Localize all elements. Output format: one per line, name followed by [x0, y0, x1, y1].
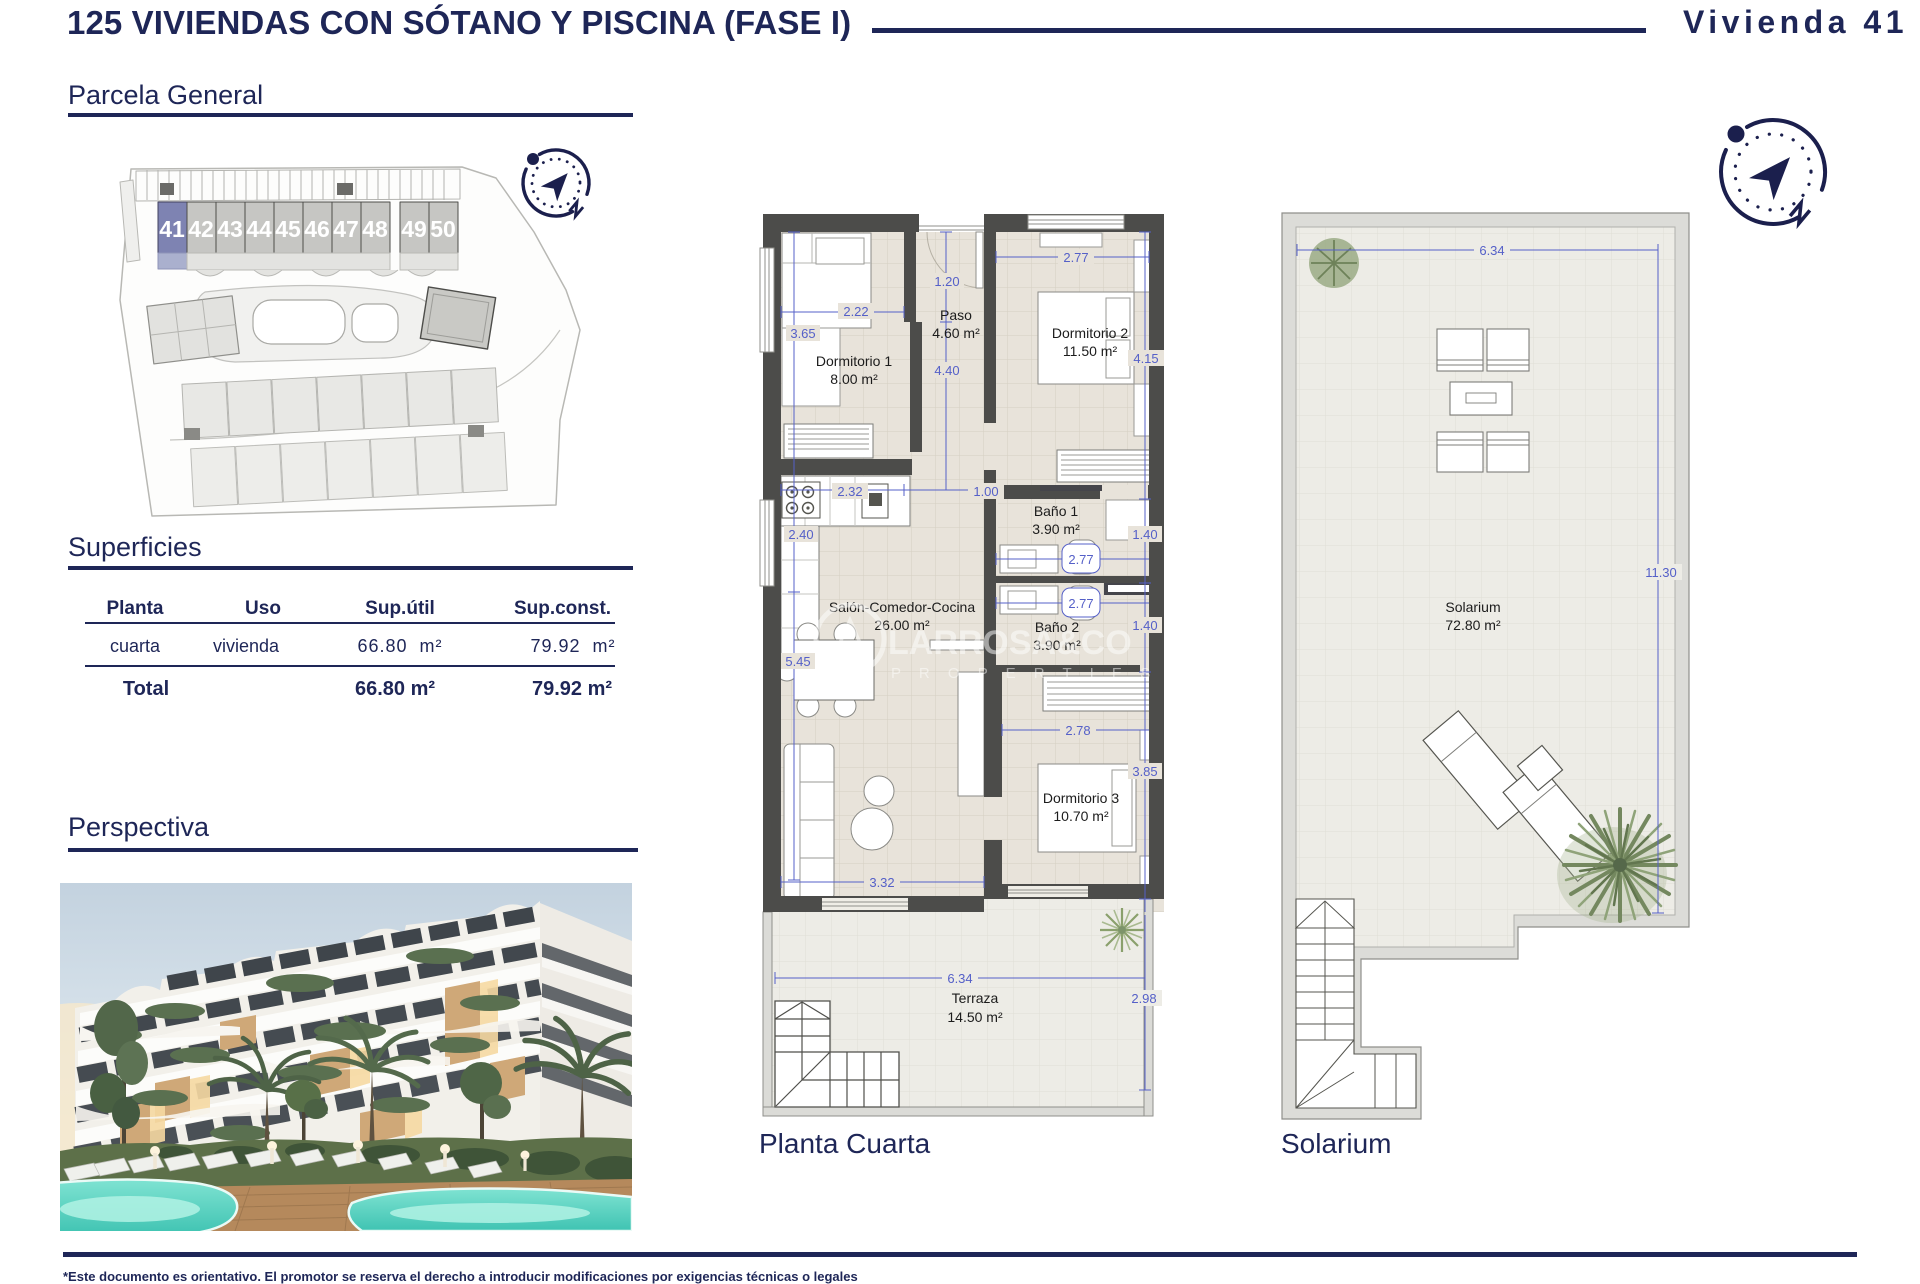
svg-text:11.50 m²: 11.50 m²	[1063, 343, 1118, 359]
svg-text:1.40: 1.40	[1132, 618, 1157, 633]
svg-text:2.32: 2.32	[837, 484, 862, 499]
svg-text:41: 41	[159, 216, 185, 242]
svg-text:Dormitorio 1: Dormitorio 1	[816, 353, 892, 369]
svg-text:P R O P E R T I E S: P R O P E R T I E S	[891, 665, 1157, 682]
svg-text:3.65: 3.65	[790, 326, 815, 341]
svg-text:2.77: 2.77	[1063, 250, 1088, 265]
svg-text:43: 43	[217, 216, 243, 242]
svg-text:10.70 m²: 10.70 m²	[1053, 808, 1109, 824]
svg-text:1.20: 1.20	[934, 274, 959, 289]
svg-text:49: 49	[401, 216, 427, 242]
svg-text:6.34: 6.34	[1479, 243, 1504, 258]
svg-text:6.34: 6.34	[947, 971, 972, 986]
svg-text:14.50 m²: 14.50 m²	[947, 1009, 1003, 1025]
svg-text:8.00 m²: 8.00 m²	[830, 371, 878, 387]
svg-text:2.77: 2.77	[1068, 552, 1093, 567]
svg-text:45: 45	[275, 216, 301, 242]
svg-text:72.80 m²: 72.80 m²	[1445, 617, 1501, 633]
svg-text:48: 48	[362, 216, 388, 242]
svg-text:1.40: 1.40	[1132, 527, 1157, 542]
svg-text:47: 47	[333, 216, 359, 242]
svg-text:Paso: Paso	[940, 307, 972, 323]
svg-text:Dormitorio 3: Dormitorio 3	[1043, 790, 1119, 806]
svg-text:50: 50	[430, 216, 456, 242]
svg-text:4.40: 4.40	[934, 363, 959, 378]
svg-text:3.90 m²: 3.90 m²	[1032, 521, 1080, 537]
svg-text:3.32: 3.32	[869, 875, 894, 890]
svg-text:1.00: 1.00	[973, 484, 998, 499]
svg-text:11.30: 11.30	[1645, 565, 1677, 580]
svg-text:2.98: 2.98	[1131, 991, 1156, 1006]
svg-text:44: 44	[246, 216, 272, 242]
svg-text:2.78: 2.78	[1065, 723, 1090, 738]
svg-text:Baño 1: Baño 1	[1034, 503, 1079, 519]
svg-text:4.60 m²: 4.60 m²	[932, 325, 980, 341]
svg-text:Dormitorio 2: Dormitorio 2	[1052, 325, 1128, 341]
svg-text:Terraza: Terraza	[952, 990, 999, 1006]
svg-text:2.40: 2.40	[788, 527, 813, 542]
svg-text:LARROSA&CO: LARROSA&CO	[888, 624, 1132, 662]
svg-text:3.85: 3.85	[1132, 764, 1157, 779]
svg-text:Solarium: Solarium	[1445, 599, 1500, 615]
svg-text:5.45: 5.45	[785, 654, 810, 669]
svg-text:46: 46	[304, 216, 330, 242]
svg-text:4.15: 4.15	[1133, 351, 1158, 366]
svg-text:42: 42	[188, 216, 214, 242]
svg-text:2.22: 2.22	[843, 304, 868, 319]
svg-text:2.77: 2.77	[1068, 596, 1093, 611]
